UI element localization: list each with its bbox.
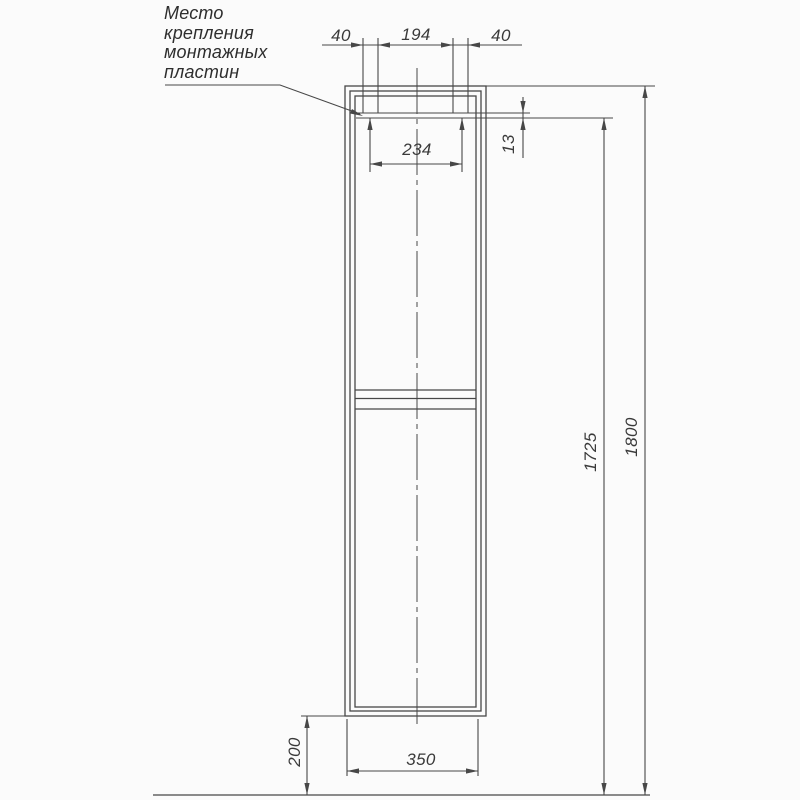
mounting-note-line: Место <box>164 4 267 24</box>
mounting-note-line: монтажных <box>164 43 267 63</box>
mounting-note-line: крепления <box>164 24 267 44</box>
dim-label-mounting-height: 1725 <box>581 432 601 471</box>
divider-shelf <box>355 390 476 409</box>
mounting-note: Место крепления монтажных пластин <box>164 4 267 82</box>
mounting-note-line: пластин <box>164 63 267 83</box>
mounting-plates <box>356 38 613 118</box>
dim-label-left-plate-width: 40 <box>331 26 351 46</box>
technical-drawing: Место крепления монтажных пластин 40 194… <box>0 0 800 800</box>
leader-line <box>165 85 360 114</box>
cabinet-outline <box>345 86 486 716</box>
dim-label-bottom-clearance: 200 <box>285 737 305 767</box>
dim-label-plate-spacing: 194 <box>401 25 431 45</box>
drawing-linework <box>0 0 800 800</box>
dim-label-plate-center-distance: 234 <box>402 140 432 160</box>
dim-label-total-height: 1800 <box>622 417 642 456</box>
dim-label-plate-thickness: 13 <box>499 134 519 154</box>
dim-label-cabinet-width: 350 <box>406 750 436 770</box>
dim-label-right-plate-width: 40 <box>491 26 511 46</box>
